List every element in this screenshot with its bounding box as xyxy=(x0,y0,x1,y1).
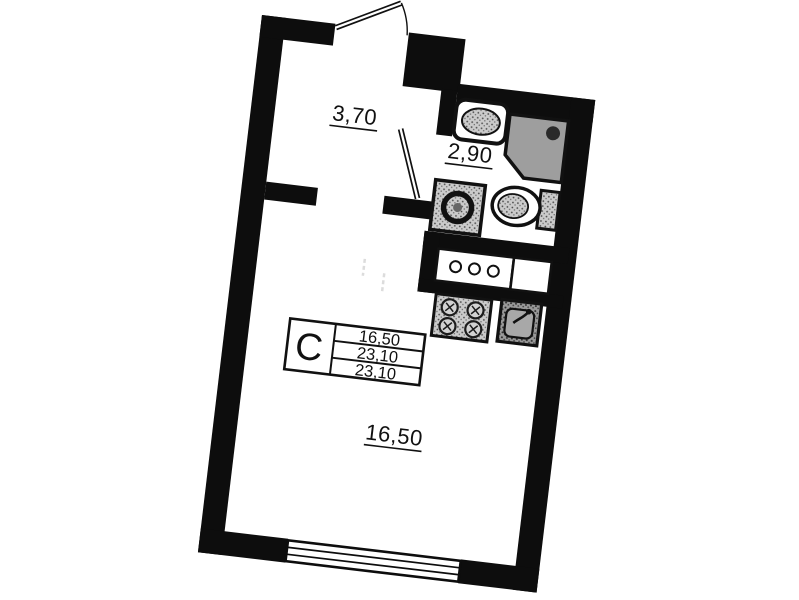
counter-blank-section xyxy=(510,258,552,294)
counter-circle xyxy=(468,263,480,275)
stove xyxy=(431,294,492,342)
counter-circle xyxy=(487,265,499,277)
page-background xyxy=(0,0,799,600)
bathroom-sink xyxy=(453,99,509,145)
legend-type-label: С xyxy=(293,325,325,370)
kitchen-sink xyxy=(497,299,542,345)
floor-plan-svg: С 16,50 23,10 23,10 3,70 2,90 16,50 xyxy=(0,0,799,600)
washing-machine xyxy=(430,180,486,236)
scanned-floor-plan-page: С 16,50 23,10 23,10 3,70 2,90 16,50 xyxy=(0,0,799,600)
wall-entrance-jamb-block xyxy=(403,33,466,93)
counter-circle xyxy=(449,261,461,273)
